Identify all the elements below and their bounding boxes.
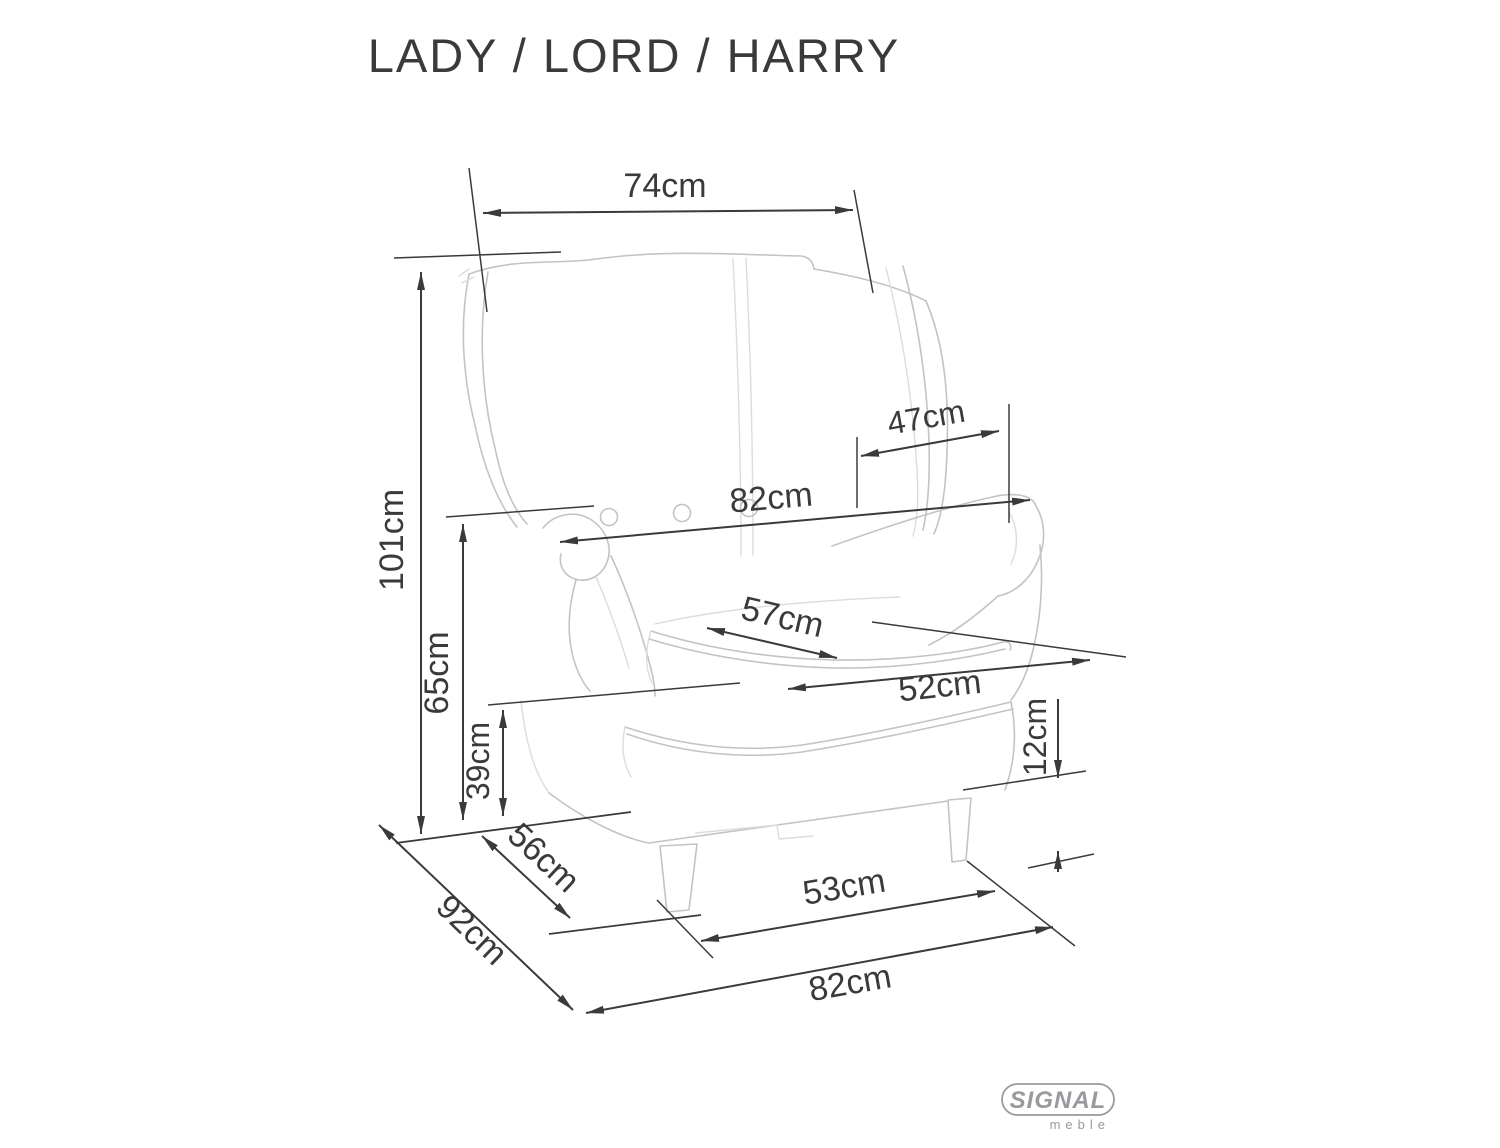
dim-label-backrest-height: 65cm	[418, 631, 456, 714]
logo-sub-text: meble	[1050, 1117, 1110, 1132]
left-armrest-inner-edge	[596, 577, 629, 668]
dim-label-armrest-depth: 47cm	[884, 393, 967, 442]
dim-label-overall-height: 101cm	[373, 489, 411, 591]
left-armrest-scroll	[543, 514, 609, 580]
dimension-overall-width-top: 74cm	[469, 167, 873, 312]
base-right-edge	[1005, 702, 1014, 790]
backrest-top-edge	[469, 253, 814, 274]
dim-label-overall-depth: 92cm	[429, 888, 515, 973]
dimension-line	[483, 210, 853, 213]
right-armrest-roll-inner	[1009, 512, 1016, 564]
base-band-upper	[625, 702, 1011, 748]
back-button-1	[601, 509, 618, 526]
right-armrest-roll	[998, 506, 1044, 596]
dimension-seat-depth: 57cm	[707, 589, 837, 658]
dim-label-seat-depth: 57cm	[738, 589, 828, 645]
dim-label-width-between-armrests: 82cm	[728, 475, 814, 520]
base-band-lower	[627, 709, 1013, 755]
corner-tuft-marks	[459, 269, 474, 283]
dimension-seat-height: 39cm	[460, 683, 740, 816]
base-left-side	[521, 701, 549, 793]
dimension-base-depth: 56cm	[482, 816, 587, 918]
dimension-leg-height: 12cm	[963, 698, 1094, 872]
dim-label-leg-height: 12cm	[1017, 698, 1053, 776]
dim-label-overall-width-bottom: 82cm	[806, 957, 894, 1009]
front-floor-line	[549, 915, 701, 934]
armchair-dimension-diagram: LADY / LORD / HARRY	[0, 0, 1500, 1148]
left-wing-inner-line	[482, 272, 527, 524]
base-bottom-edge	[549, 793, 948, 843]
dimension-seat-width: 52cm	[788, 622, 1126, 709]
extension-line	[872, 622, 1126, 657]
left-armrest-front	[569, 580, 590, 691]
front-left-foot	[660, 844, 697, 912]
extension-line	[488, 683, 740, 705]
dim-label-seat-height: 39cm	[460, 722, 496, 800]
extension-line	[394, 252, 561, 258]
seat-cushion-piping	[649, 639, 1005, 668]
dimension-backrest-height: 65cm	[418, 506, 594, 820]
underframe-line	[696, 825, 813, 839]
signal-logo: SIGNAL meble	[1002, 1084, 1114, 1132]
extension-line	[1028, 854, 1094, 868]
logo-brand-text: SIGNAL	[1010, 1087, 1107, 1114]
right-armrest-outer-side	[1011, 545, 1042, 700]
dim-label-front-feet-span: 53cm	[800, 862, 888, 913]
extension-line	[469, 168, 487, 312]
dim-label-overall-width-top: 74cm	[623, 167, 706, 205]
extension-line	[657, 900, 713, 958]
dimension-front-feet-span: 53cm	[657, 861, 1075, 958]
right-wing-inner-line	[903, 266, 929, 530]
technical-drawing-page: LADY / LORD / HARRY	[0, 0, 1500, 1148]
dim-label-base-depth: 56cm	[500, 816, 587, 900]
back-button-2	[674, 505, 691, 522]
dim-label-seat-width: 52cm	[897, 663, 984, 709]
dimension-overall-width-bottom: 82cm	[586, 927, 1053, 1013]
page-title: LADY / LORD / HARRY	[368, 29, 901, 82]
left-wing-outer-line	[463, 274, 517, 527]
armchair-sketch	[459, 253, 1044, 912]
dimension-width-between-armrests: 82cm	[560, 475, 1030, 542]
front-right-foot	[948, 798, 971, 862]
